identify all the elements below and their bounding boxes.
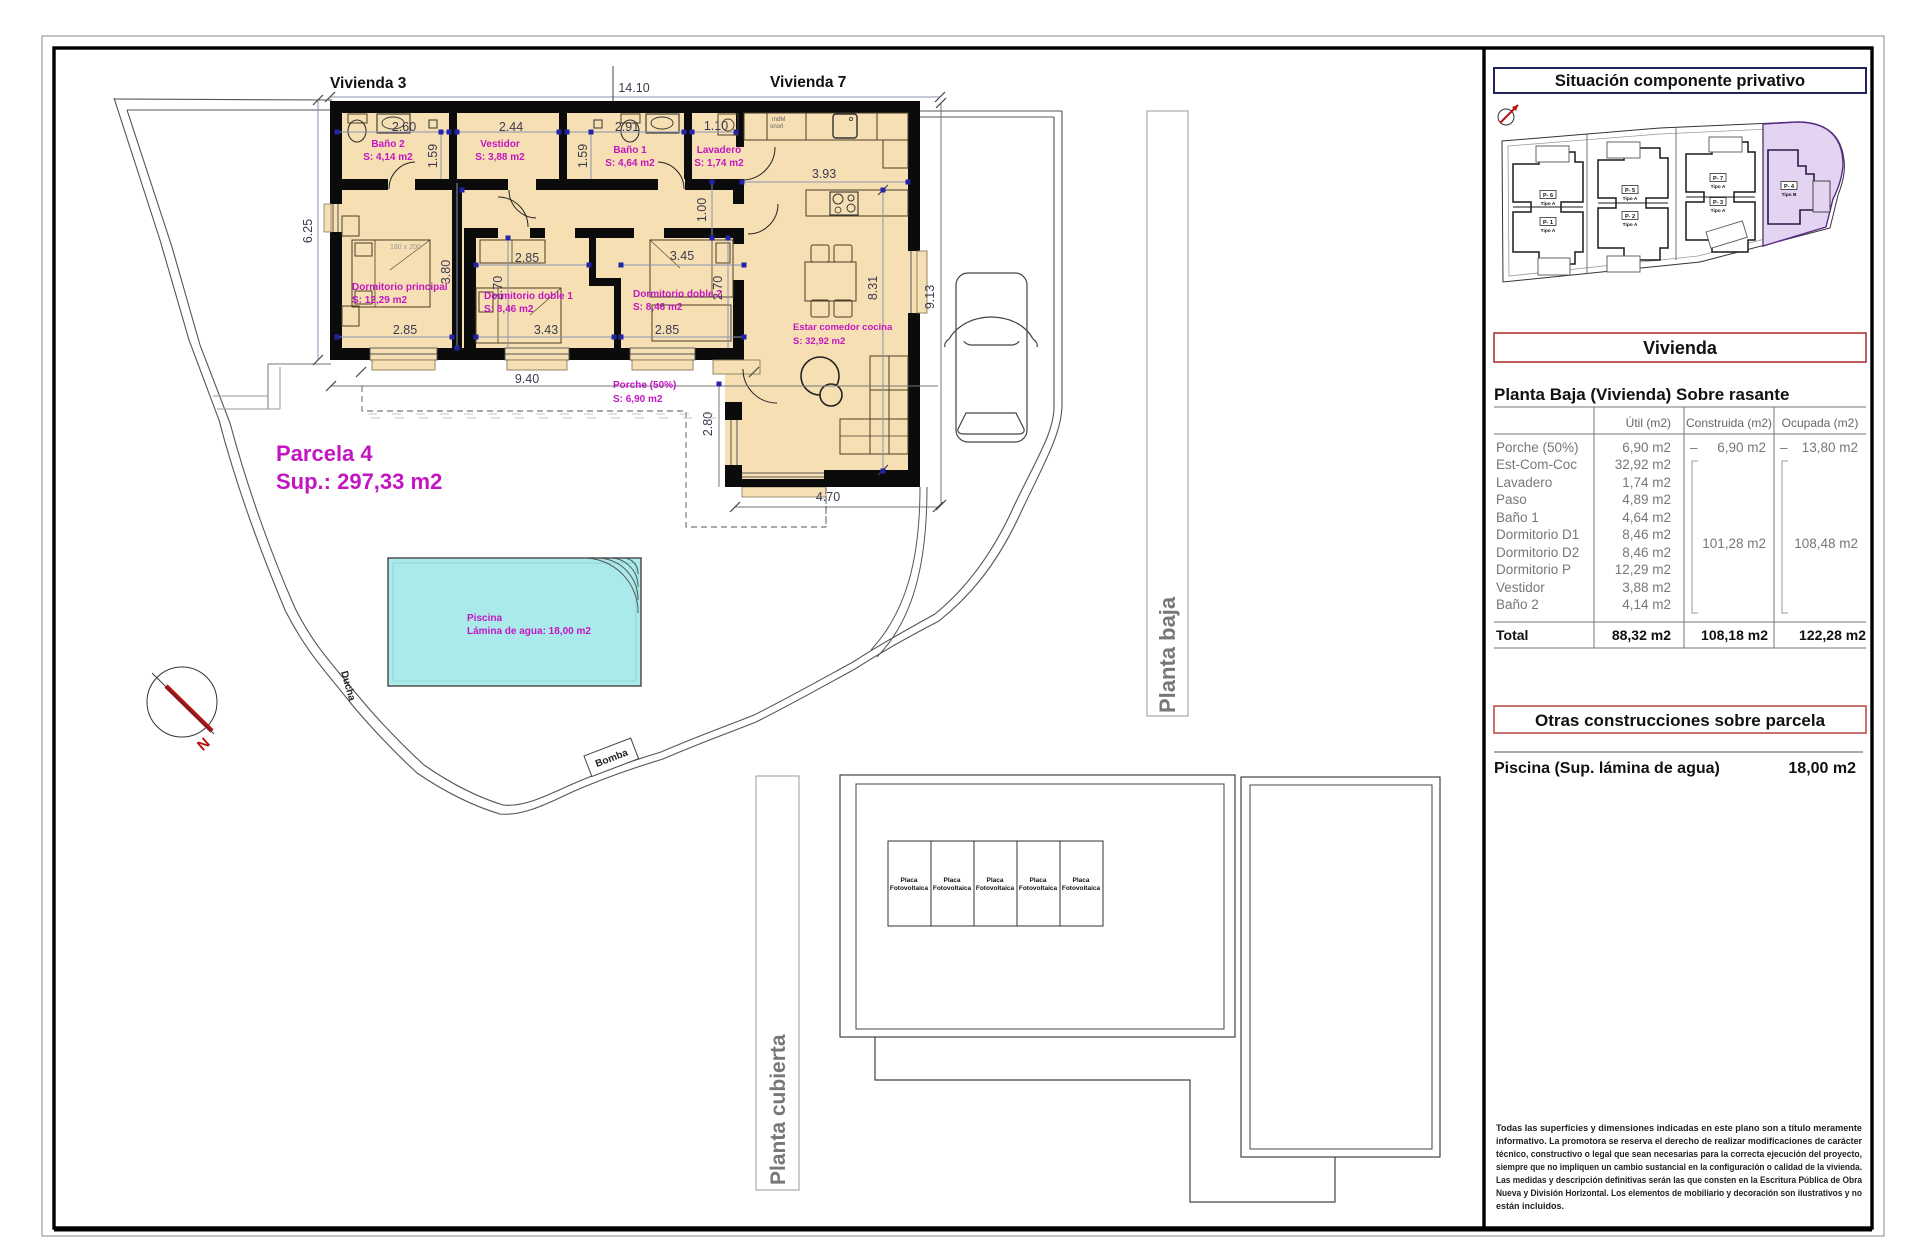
svg-text:Baño 2: Baño 2 (1496, 597, 1539, 612)
svg-text:4,14 m2: 4,14 m2 (1622, 597, 1671, 612)
svg-text:Baño 1: Baño 1 (613, 145, 647, 156)
svg-text:108,48 m2: 108,48 m2 (1794, 536, 1858, 551)
svg-text:Planta baja: Planta baja (1155, 596, 1180, 713)
svg-text:P- 2: P- 2 (1625, 214, 1635, 220)
svg-text:Las medidas y descripción defi: Las medidas y descripción definitivas se… (1496, 1175, 1863, 1185)
svg-text:Vivienda: Vivienda (1643, 338, 1718, 358)
svg-text:13,80 m2: 13,80 m2 (1802, 440, 1858, 455)
svg-text:Dormitorio D1: Dormitorio D1 (1496, 527, 1579, 542)
svg-text:S: 12,29 m2: S: 12,29 m2 (352, 295, 407, 306)
svg-text:88,32 m2: 88,32 m2 (1612, 627, 1671, 643)
svg-text:S: 32,92 m2: S: 32,92 m2 (793, 336, 845, 347)
svg-text:están incluidos.: están incluidos. (1496, 1201, 1564, 1211)
svg-text:32,92 m2: 32,92 m2 (1615, 457, 1671, 472)
svg-text:P- 4: P- 4 (1784, 184, 1795, 190)
svg-text:–: – (1690, 440, 1698, 455)
svg-text:Porche (50%): Porche (50%) (613, 380, 676, 391)
svg-text:6,90 m2: 6,90 m2 (1717, 440, 1766, 455)
svg-text:2.85: 2.85 (655, 323, 679, 337)
svg-text:S: 1,74 m2: S: 1,74 m2 (694, 158, 744, 169)
svg-text:–: – (1780, 440, 1788, 455)
svg-text:Placa: Placa (944, 877, 961, 884)
svg-text:8,46 m2: 8,46 m2 (1622, 527, 1671, 542)
svg-text:2.85: 2.85 (393, 323, 417, 337)
svg-text:12,29 m2: 12,29 m2 (1615, 562, 1671, 577)
svg-text:Parcela 4: Parcela 4 (276, 441, 373, 466)
svg-text:Dormitorio D2: Dormitorio D2 (1496, 545, 1579, 560)
svg-text:S: 8,46 m2: S: 8,46 m2 (484, 304, 534, 315)
svg-text:2.80: 2.80 (701, 412, 715, 436)
svg-text:Paso: Paso (1496, 492, 1527, 507)
svg-text:3,88 m2: 3,88 m2 (1622, 580, 1671, 595)
svg-text:4,89 m2: 4,89 m2 (1622, 492, 1671, 507)
svg-text:S: 4,64 m2: S: 4,64 m2 (605, 158, 655, 169)
svg-text:180 x 200: 180 x 200 (390, 244, 421, 251)
svg-text:Tipo A: Tipo A (1711, 208, 1726, 214)
svg-text:4.70: 4.70 (816, 490, 840, 504)
svg-text:Dormitorio principal: Dormitorio principal (352, 282, 448, 293)
svg-text:18,00 m2: 18,00 m2 (1788, 760, 1856, 777)
svg-text:2.91: 2.91 (615, 120, 639, 134)
svg-text:Tipo A: Tipo A (1541, 228, 1556, 234)
svg-text:14.10: 14.10 (618, 81, 649, 95)
svg-text:Tipo A: Tipo A (1623, 222, 1638, 228)
svg-text:3.43: 3.43 (534, 323, 558, 337)
svg-text:S: 4,14 m2: S: 4,14 m2 (363, 152, 413, 163)
svg-text:Baño 2: Baño 2 (371, 139, 405, 150)
svg-text:Placa: Placa (1030, 877, 1047, 884)
svg-text:6.25: 6.25 (301, 219, 315, 243)
svg-text:Tipo A: Tipo A (1711, 184, 1726, 190)
svg-text:siempre que no impliquen un ca: siempre que no impliquen un cambio susta… (1496, 1162, 1862, 1172)
svg-text:Est-Com-Coc: Est-Com-Coc (1496, 457, 1577, 472)
svg-text:Dormitorio P: Dormitorio P (1496, 562, 1571, 577)
svg-text:Baño 1: Baño 1 (1496, 510, 1539, 525)
svg-text:3.45: 3.45 (670, 249, 694, 263)
svg-text:4,64 m2: 4,64 m2 (1622, 510, 1671, 525)
svg-text:S: 8,46 m2: S: 8,46 m2 (633, 302, 683, 313)
svg-text:Otras construcciones sobre par: Otras construcciones sobre parcela (1535, 711, 1826, 730)
svg-text:onorl: onorl (770, 124, 783, 130)
svg-text:Placa: Placa (901, 877, 918, 884)
svg-text:Lámina de agua: 18,00 m2: Lámina de agua: 18,00 m2 (467, 626, 591, 637)
svg-text:Fotovoltaica: Fotovoltaica (1062, 885, 1101, 892)
svg-text:122,28 m2: 122,28 m2 (1799, 627, 1866, 643)
svg-text:informativo. La promotora se r: informativo. La promotora se reserva el … (1496, 1136, 1862, 1146)
svg-text:6,90 m2: 6,90 m2 (1622, 440, 1671, 455)
svg-text:Sup.: 297,33 m2: Sup.: 297,33 m2 (276, 469, 442, 494)
svg-text:Vestidor: Vestidor (480, 139, 520, 150)
svg-text:2.44: 2.44 (499, 120, 523, 134)
svg-text:Fotovoltaica: Fotovoltaica (1019, 885, 1058, 892)
svg-text:Placa: Placa (987, 877, 1004, 884)
svg-text:2.60: 2.60 (392, 120, 416, 134)
svg-text:3.80: 3.80 (439, 260, 453, 284)
svg-text:S: 6,90 m2: S: 6,90 m2 (613, 394, 663, 405)
svg-text:Planta cubierta: Planta cubierta (767, 1034, 790, 1185)
svg-text:101,28 m2: 101,28 m2 (1702, 536, 1766, 551)
svg-text:3.93: 3.93 (812, 167, 836, 181)
svg-text:P- 5: P- 5 (1625, 188, 1635, 194)
svg-text:8.31: 8.31 (866, 276, 880, 300)
svg-text:Tipo A: Tipo A (1623, 196, 1638, 202)
svg-text:S: 3,88 m2: S: 3,88 m2 (475, 152, 525, 163)
svg-text:Placa: Placa (1073, 877, 1090, 884)
svg-text:2.85: 2.85 (515, 251, 539, 265)
svg-text:1,74 m2: 1,74 m2 (1622, 475, 1671, 490)
svg-text:1.59: 1.59 (576, 144, 590, 168)
svg-text:9.13: 9.13 (923, 285, 937, 309)
svg-text:P- 1: P- 1 (1543, 220, 1553, 226)
svg-text:Piscina (Sup. lámina de agua): Piscina (Sup. lámina de agua) (1494, 760, 1720, 777)
svg-text:1.00: 1.00 (695, 198, 709, 222)
svg-text:Vivienda 7: Vivienda 7 (770, 74, 846, 91)
svg-text:P- 6: P- 6 (1543, 193, 1553, 199)
svg-text:Dormitorio doble 2: Dormitorio doble 2 (633, 289, 722, 300)
svg-text:Tipo A: Tipo A (1541, 201, 1556, 207)
svg-text:8,46 m2: 8,46 m2 (1622, 545, 1671, 560)
svg-text:Ocupada (m2): Ocupada (m2) (1782, 416, 1859, 430)
svg-text:Porche (50%): Porche (50%) (1496, 440, 1579, 455)
svg-text:Nueva y División Horizontal. L: Nueva y División Horizontal. Los element… (1496, 1188, 1862, 1198)
svg-text:Dormitorio doble 1: Dormitorio doble 1 (484, 291, 573, 302)
svg-text:Lavadero: Lavadero (697, 145, 741, 156)
svg-text:Piscina: Piscina (467, 613, 502, 624)
svg-text:Vestidor: Vestidor (1496, 580, 1545, 595)
svg-text:Tipo B: Tipo B (1782, 192, 1797, 198)
svg-text:P- 3: P- 3 (1713, 200, 1723, 206)
svg-text:108,18 m2: 108,18 m2 (1701, 627, 1768, 643)
svg-text:Lavadero: Lavadero (1496, 475, 1552, 490)
svg-text:1.59: 1.59 (426, 144, 440, 168)
svg-text:Fotovoltaica: Fotovoltaica (976, 885, 1015, 892)
svg-text:Planta Baja (Vivienda) Sobre r: Planta Baja (Vivienda) Sobre rasante (1494, 385, 1789, 404)
svg-text:Estar comedor cocina: Estar comedor cocina (793, 322, 893, 333)
svg-text:Fotovoltaica: Fotovoltaica (890, 885, 929, 892)
svg-text:9.40: 9.40 (515, 372, 539, 386)
svg-text:Útil (m2): Útil (m2) (1626, 415, 1671, 430)
svg-text:Todas las superficies y dimens: Todas las superficies y dimensiones indi… (1496, 1123, 1862, 1133)
svg-text:mdM: mdM (772, 117, 785, 123)
svg-text:Total: Total (1496, 627, 1528, 643)
svg-text:Fotovoltaica: Fotovoltaica (933, 885, 972, 892)
svg-text:Vivienda 3: Vivienda 3 (330, 75, 407, 92)
svg-text:P- 7: P- 7 (1713, 176, 1723, 182)
svg-text:Situación componente privativo: Situación componente privativo (1555, 72, 1805, 90)
svg-text:técnico, constructivo o legal: técnico, constructivo o legal que sean n… (1496, 1149, 1862, 1159)
svg-text:1.10: 1.10 (704, 119, 728, 133)
svg-text:Construida (m2): Construida (m2) (1686, 416, 1772, 430)
